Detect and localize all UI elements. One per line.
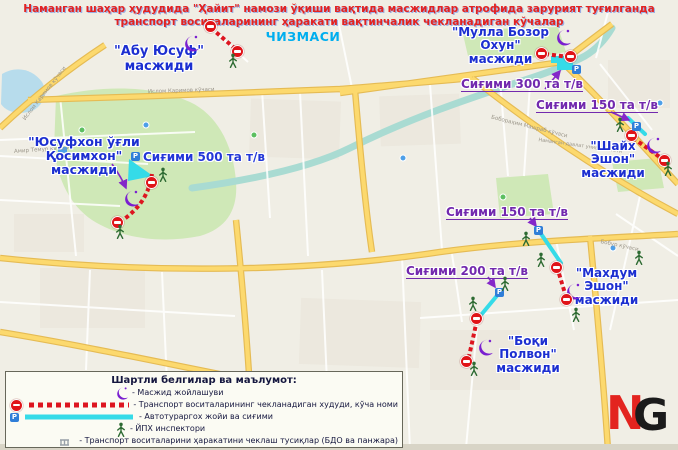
legend-item-label: - ЙПХ инспектори xyxy=(130,423,205,435)
inspector-icon xyxy=(500,276,510,291)
parking-icon: P xyxy=(10,413,19,422)
mosque-label-mulla-bozor-okhun: "Мулла Бозор Охун" масжиди xyxy=(433,26,568,66)
barrier-icon xyxy=(58,436,75,447)
capacity-label-150-top: Сиғими 150 та т/в xyxy=(536,98,658,113)
capacity-label-300: Сиғими 300 та т/в xyxy=(461,77,583,92)
mosque-label-boqi-polvon: "Боқи Полвон" масжиди xyxy=(478,335,578,375)
restricted-dash-sample xyxy=(27,401,129,409)
inspector-icon xyxy=(158,167,168,182)
no-entry-icon xyxy=(535,47,548,60)
mosque-name: "Мулла Бозор Охун" xyxy=(433,26,568,53)
no-entry-icon xyxy=(145,176,158,189)
capacity-label-500: Сиғими 500 та т/в xyxy=(143,150,265,164)
mosque-icon xyxy=(114,386,128,400)
mosque-name: "Боқи Полвон" xyxy=(478,335,578,362)
no-entry-icon xyxy=(10,399,23,412)
mosque-type: масжиди xyxy=(125,59,194,74)
capacity-label-150-mid: Сиғими 150 та т/в xyxy=(446,205,568,220)
legend-item-label: - Транспорт воситаларини ҳаракатини чекл… xyxy=(79,435,398,447)
title-line-1: Наманган шаҳар ҳудудида "Ҳайит" намози ў… xyxy=(23,3,654,15)
mosque-icon xyxy=(121,189,139,207)
legend-item-restricted: - Транспорт воситаларининг чекланадиган … xyxy=(10,399,398,411)
legend-item-barriers: - Транспорт воситаларини ҳаракатини чекл… xyxy=(10,435,398,447)
legend-item-label: - Масжид жойлашуви xyxy=(132,387,223,399)
inspector-icon xyxy=(468,296,478,311)
parking-icon: P xyxy=(572,65,581,74)
inspector-icon xyxy=(634,250,644,265)
no-entry-icon xyxy=(564,50,577,63)
mosque-icon xyxy=(553,28,571,46)
inspector-icon xyxy=(116,422,126,437)
mosque-name: "Абу Юсуф" xyxy=(100,45,218,60)
ng-logo-g: G xyxy=(633,390,669,441)
inspector-icon xyxy=(536,252,546,267)
no-entry-icon xyxy=(470,312,483,325)
parking-icon: P xyxy=(131,152,140,161)
legend-title: Шартли белгилар ва маълумот: xyxy=(10,374,398,387)
no-entry-icon xyxy=(204,20,217,33)
inspector-icon xyxy=(521,231,531,246)
parking-icon: P xyxy=(632,122,641,131)
legend-item-mosque: - Масжид жойлашуви xyxy=(10,387,398,399)
mosque-type: масжиди xyxy=(51,162,117,177)
mosque-type: масжиди xyxy=(496,361,559,375)
parking-line-sample xyxy=(23,413,135,421)
no-entry-icon xyxy=(550,261,563,274)
parking-icon: P xyxy=(534,226,543,235)
inspector-icon xyxy=(571,307,581,322)
legend-item-inspector: - ЙПХ инспектори xyxy=(10,423,398,435)
mosque-icon xyxy=(181,34,199,52)
infographic-title: Наманган шаҳар ҳудудида "Ҳайит" намози ў… xyxy=(0,3,678,44)
legend-item-parking: P - Автотураргох жойи ва сиғими xyxy=(10,411,398,423)
mosque-icon xyxy=(643,136,661,154)
inspector-icon xyxy=(469,361,479,376)
mosque-type: масжиди xyxy=(469,52,532,66)
ng-logo: N G xyxy=(606,394,674,446)
mosque-type: масжиди xyxy=(581,166,644,180)
inspector-icon xyxy=(228,53,238,68)
infographic-root: Ислом Каримов кўчаси Ислом Каримов кўчас… xyxy=(0,0,678,450)
mosque-icon xyxy=(475,338,493,356)
inspector-icon xyxy=(615,117,625,132)
legend-item-label: - Автотураргох жойи ва сиғими xyxy=(139,411,273,423)
legend-item-label: - Транспорт воситаларининг чекланадиган … xyxy=(133,399,398,411)
mosque-label-abu-yusuf: "Абу Юсуф" масжиди xyxy=(100,45,218,74)
inspector-icon xyxy=(115,224,125,239)
mosque-type: масжиди xyxy=(575,293,638,307)
inspector-icon xyxy=(663,161,673,176)
legend-box: Шартли белгилар ва маълумот: - Масжид жо… xyxy=(5,371,403,448)
no-entry-icon xyxy=(560,293,573,306)
